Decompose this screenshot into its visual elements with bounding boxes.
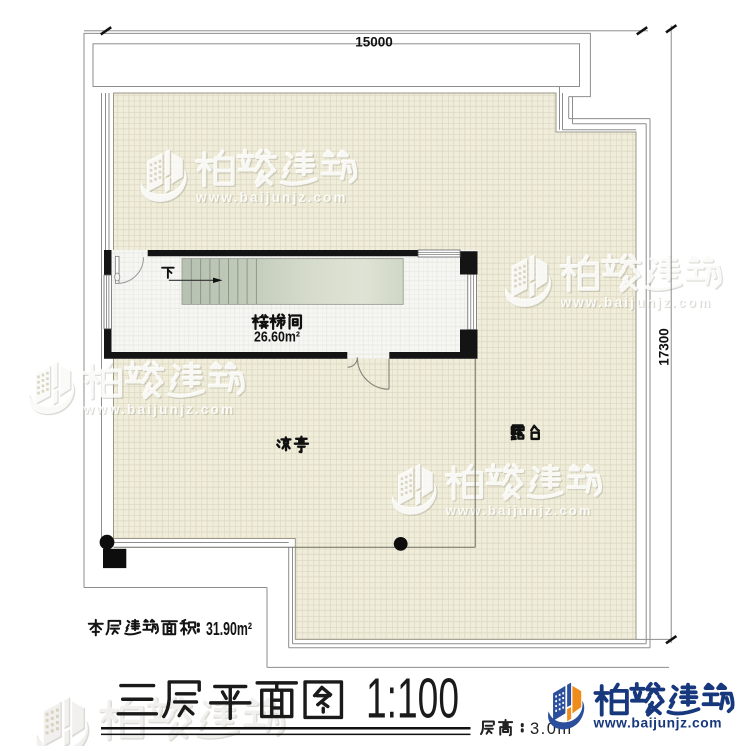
svg-text:15000: 15000 (355, 35, 393, 50)
svg-text:1:100: 1:100 (366, 667, 459, 731)
svg-text:www.baijunjz.com: www.baijunjz.com (83, 402, 236, 417)
svg-text:www.baijunjz.com: www.baijunjz.com (560, 295, 713, 310)
svg-text:www.baijunjz.com: www.baijunjz.com (593, 716, 723, 731)
svg-text:www.baijunjz.com: www.baijunjz.com (445, 503, 593, 518)
svg-text:www.baijunjz.com: www.baijunjz.com (195, 190, 348, 205)
svg-text:26.60m²: 26.60m² (254, 330, 300, 346)
svg-text:31.90m²: 31.90m² (206, 619, 252, 639)
svg-text:17300: 17300 (657, 328, 672, 366)
